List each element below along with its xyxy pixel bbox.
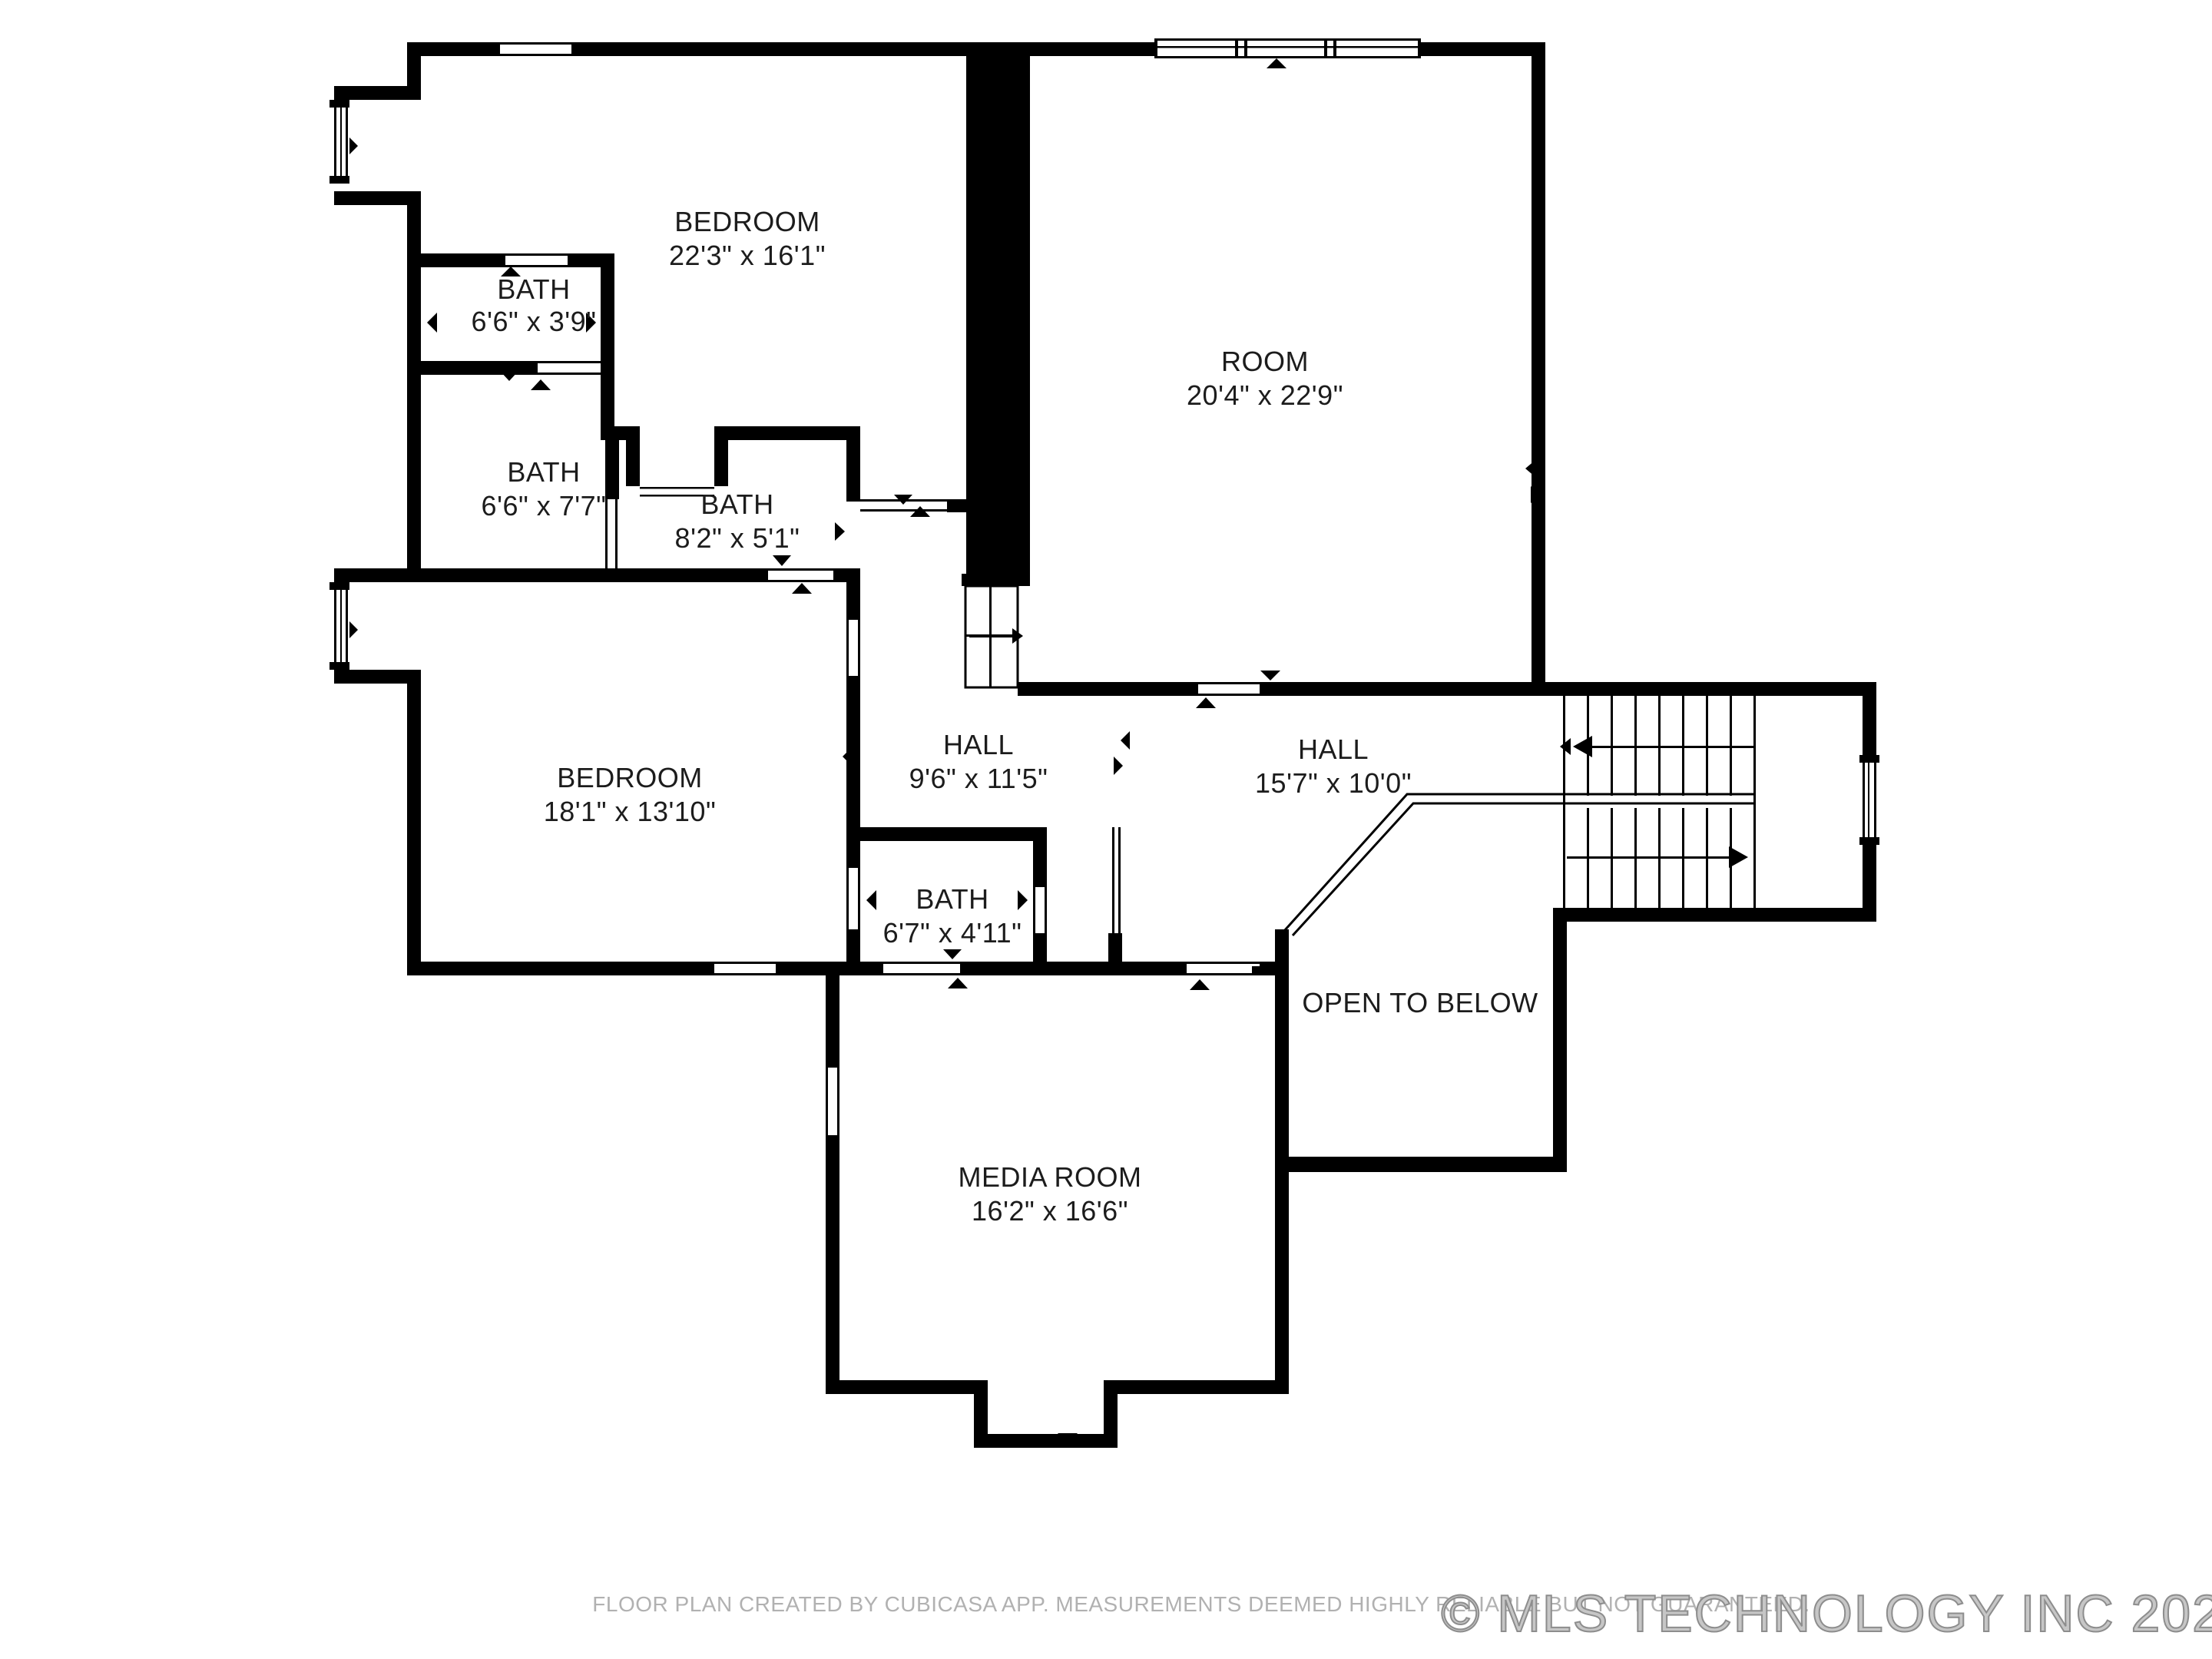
room-label-bath-left: BATH <box>507 456 580 488</box>
room-dims-bath-lower: 6'7" x 4'11" <box>883 917 1022 949</box>
window-left-bay-upper <box>329 100 349 184</box>
window-stair-right <box>1859 755 1879 845</box>
window-bath-small <box>502 253 571 267</box>
room-label-open-to-below: OPEN TO BELOW <box>1302 987 1538 1018</box>
room-dims-hall-small: 9'6" x 11'5" <box>909 763 1048 794</box>
staircase <box>1563 696 1756 908</box>
room-label-bedroom-left: BEDROOM <box>557 762 703 793</box>
room-label-bedroom-top: BEDROOM <box>674 206 820 237</box>
mls-watermark: © MLS TECHNOLOGY INC 2026 <box>1441 1584 2212 1643</box>
room-dims-bath-left: 6'6" x 7'7" <box>482 490 607 522</box>
room-label-media-room: MEDIA ROOM <box>958 1161 1141 1193</box>
room-label-hall-large: HALL <box>1298 733 1369 765</box>
room-dims-room: 20'4" x 22'9" <box>1187 379 1343 411</box>
window-room-triple <box>1154 38 1421 58</box>
floor-plan-canvas: BEDROOM 22'3" x 16'1" BATH 6'6" x 3'9" B… <box>0 0 2212 1659</box>
small-staircase <box>965 586 1023 687</box>
floor-plan: BEDROOM 22'3" x 16'1" BATH 6'6" x 3'9" B… <box>0 0 2212 1659</box>
room-label-bath-lower: BATH <box>916 883 988 915</box>
room-dims-media-room: 16'2" x 16'6" <box>972 1195 1128 1227</box>
room-dims-bath-small: 6'6" x 3'9" <box>472 306 597 337</box>
room-dims-hall-large: 15'7" x 10'0" <box>1255 767 1412 799</box>
window-top-left <box>497 42 575 56</box>
walls <box>334 42 1876 1448</box>
door-openings <box>538 361 1260 1135</box>
room-dims-bath-mid: 8'2" x 5'1" <box>675 522 800 554</box>
room-label-bath-mid: BATH <box>700 488 773 520</box>
room-label-hall-small: HALL <box>943 729 1014 760</box>
room-label-bath-small: BATH <box>497 273 570 305</box>
room-dims-bedroom-left: 18'1" x 13'10" <box>544 796 716 827</box>
room-label-room: ROOM <box>1221 346 1309 377</box>
room-dims-bedroom-top: 22'3" x 16'1" <box>669 240 826 271</box>
window-left-bay-lower <box>329 582 349 670</box>
